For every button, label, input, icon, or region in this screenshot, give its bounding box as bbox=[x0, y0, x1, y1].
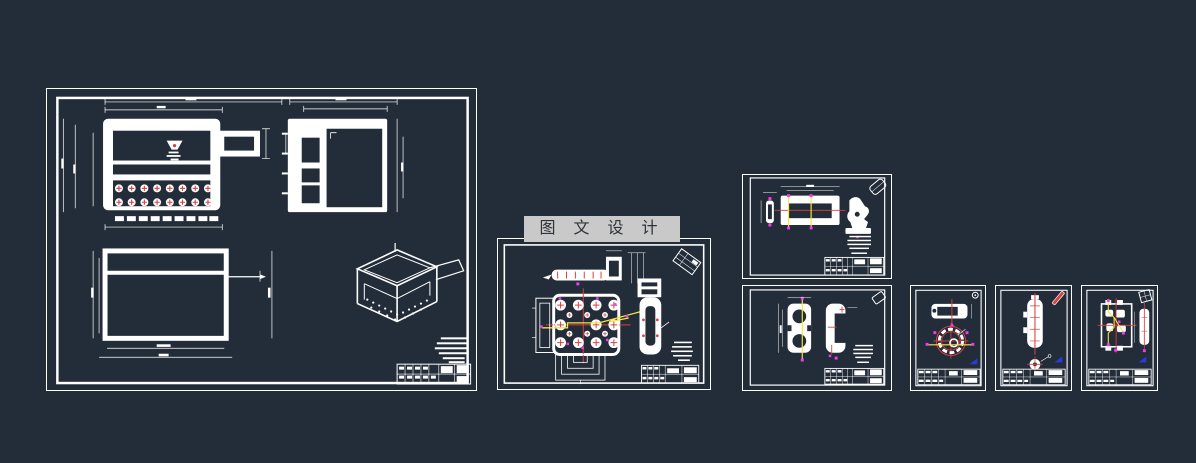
tick-row bbox=[115, 216, 218, 221]
sheet-1-canvas bbox=[47, 89, 476, 390]
title-block bbox=[397, 364, 471, 384]
sheet-7-canvas bbox=[1082, 286, 1157, 390]
bracket-view bbox=[845, 197, 871, 238]
technical-notes bbox=[671, 342, 693, 361]
title-block bbox=[825, 368, 884, 384]
technical-notes bbox=[847, 236, 871, 254]
sheet-3-canvas bbox=[743, 175, 891, 278]
main-view bbox=[775, 185, 846, 230]
stamp-icon bbox=[972, 292, 978, 298]
pin-view bbox=[1135, 303, 1150, 352]
drawing-sheet-4[interactable] bbox=[742, 285, 892, 391]
sheet-6-canvas bbox=[996, 286, 1071, 390]
shaft-view bbox=[1023, 293, 1042, 354]
wheel-view bbox=[926, 323, 975, 358]
end-view bbox=[761, 193, 777, 227]
isometric-view bbox=[357, 243, 463, 321]
sheet-4-canvas bbox=[743, 286, 891, 390]
revision-flag-icon bbox=[969, 358, 977, 364]
title-block bbox=[642, 365, 699, 383]
drawing-sheet-7[interactable] bbox=[1081, 285, 1158, 391]
drawing-sheet-5[interactable] bbox=[910, 285, 986, 391]
watermark-text: 图 文 设 计 bbox=[539, 220, 664, 237]
stamp-icon bbox=[1052, 291, 1065, 305]
c-bracket-view bbox=[826, 304, 857, 360]
bar-top-view bbox=[543, 251, 646, 286]
drawing-sheet-6[interactable] bbox=[995, 285, 1072, 391]
cad-model-space[interactable]: 图 文 设 计 bbox=[0, 0, 1196, 463]
revision-flag-icon bbox=[1138, 357, 1146, 363]
drawing-sheet-2[interactable] bbox=[497, 238, 711, 390]
housing-top-view bbox=[282, 98, 404, 212]
plate-top-view bbox=[61, 98, 286, 230]
stamp-icon bbox=[1139, 290, 1152, 303]
revision-flag-icon bbox=[1054, 357, 1062, 363]
drawing-sheet-3[interactable] bbox=[742, 174, 892, 279]
title-block bbox=[918, 369, 980, 385]
block-view bbox=[1098, 298, 1137, 353]
stamp-icon bbox=[872, 291, 886, 304]
technical-notes bbox=[435, 337, 467, 363]
sheet-5-canvas bbox=[911, 286, 985, 390]
plate-front-view bbox=[91, 251, 272, 357]
technical-notes bbox=[853, 345, 873, 363]
stamp-icon bbox=[673, 249, 701, 275]
sleeve-view bbox=[779, 297, 811, 362]
cylinder-view bbox=[931, 299, 971, 327]
title-block bbox=[825, 257, 884, 275]
title-block bbox=[1003, 369, 1065, 385]
drawing-sheet-1[interactable] bbox=[46, 88, 477, 391]
sheet-2-canvas bbox=[498, 239, 710, 389]
side-view bbox=[638, 278, 670, 354]
title-block bbox=[1089, 369, 1151, 385]
watermark: 图 文 设 计 bbox=[524, 216, 680, 242]
plate-main-view bbox=[532, 288, 647, 384]
